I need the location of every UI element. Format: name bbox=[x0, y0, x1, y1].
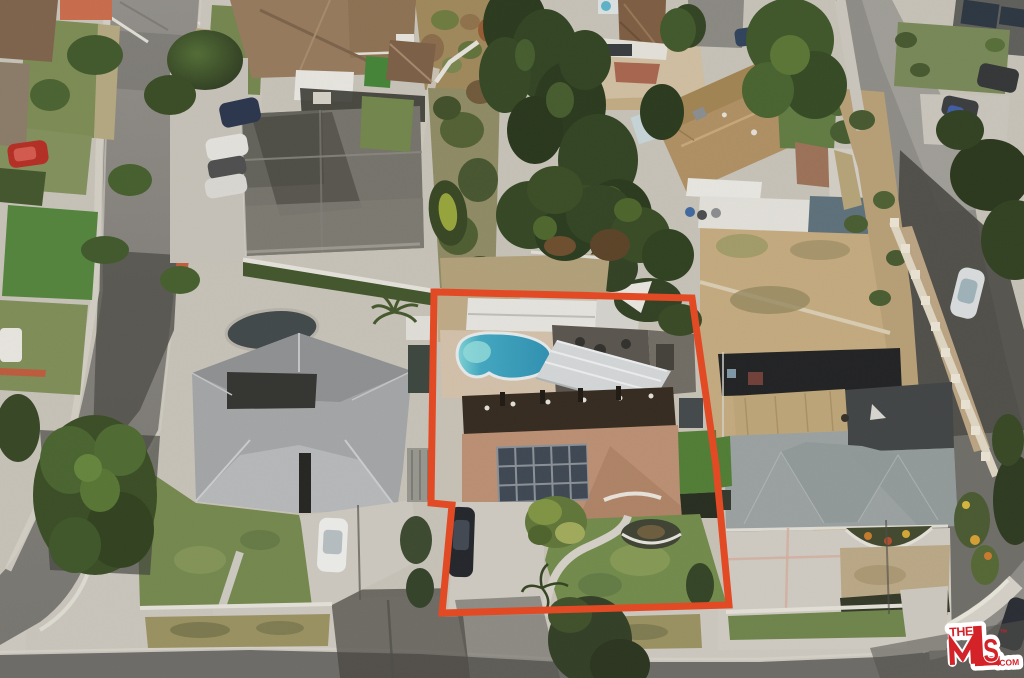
svg-text:THE: THE bbox=[949, 624, 973, 639]
svg-text:.COM: .COM bbox=[997, 657, 1020, 668]
svg-text:TM: TM bbox=[1000, 628, 1007, 633]
